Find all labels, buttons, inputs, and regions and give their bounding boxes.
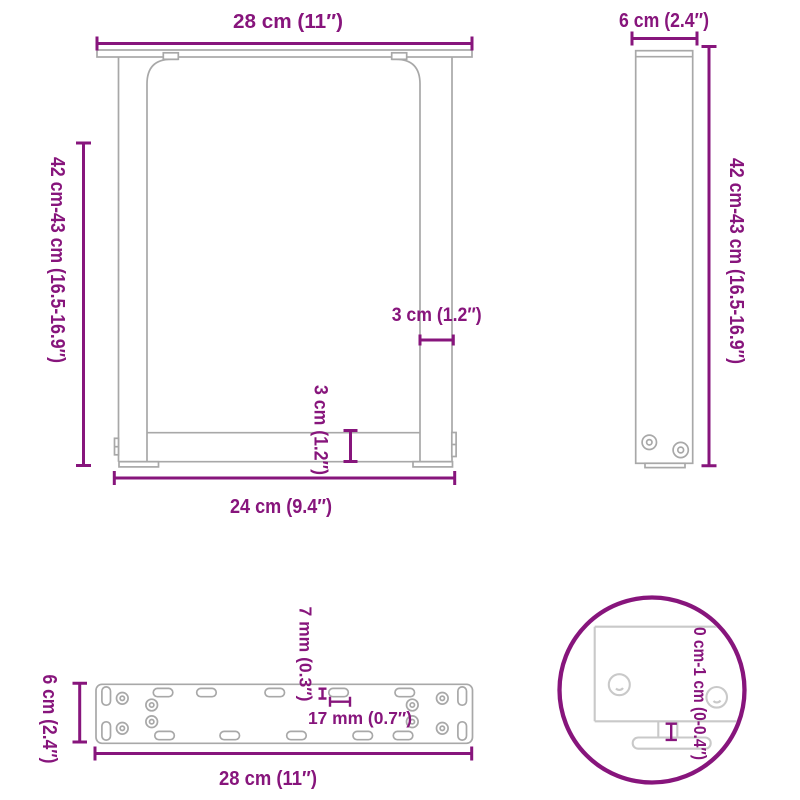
side-foot-plate: [645, 463, 685, 467]
plate-depth-dimension-line: [73, 683, 88, 742]
front-bottom-width-label: 24 cm (9.4″): [230, 495, 332, 518]
front-height-dimension-line: [76, 143, 91, 466]
side-view-outline: [636, 51, 693, 468]
leg-thickness-label: 3 cm (1.2″): [392, 305, 482, 326]
leg-thickness-dimension-line: [420, 335, 453, 346]
side-depth-dimension-line: [632, 32, 697, 46]
plate-length-dimension-line: [95, 747, 472, 761]
side-depth-label: 6 cm (2.4″): [619, 9, 709, 32]
front-view-outline: [97, 50, 472, 467]
right-leg-inner-edge: [392, 59, 420, 461]
front-bottom-width-dimension-line: [114, 471, 454, 485]
top-plate: [97, 50, 472, 57]
slot-width-label: 7 mm (0.3″): [296, 607, 316, 702]
side-leg-body: [636, 51, 693, 464]
front-top-width-label: 28 cm (11″): [233, 10, 343, 33]
left-mount-tab: [163, 53, 178, 60]
side-view: 6 cm (2.4″) 42 cm-43 cm (16.5-16.9″): [619, 9, 748, 468]
slot-length-label: 17 mm (0.7″): [308, 708, 412, 728]
crossbar-thickness-dimension-line: [344, 431, 358, 462]
front-top-width-dimension-line: [97, 37, 472, 51]
plate-outline: [96, 684, 473, 743]
front-height-label: 42 cm-43 cm (16.5-16.9″): [46, 157, 69, 363]
technical-diagram-svg: 28 cm (11″) 42 cm-43 cm (16.5-16.9″) 3 c…: [0, 0, 800, 800]
right-mount-tab: [392, 53, 407, 60]
diagram-canvas: 28 cm (11″) 42 cm-43 cm (16.5-16.9″) 3 c…: [0, 0, 800, 800]
plate-depth-label: 6 cm (2.4″): [38, 675, 61, 764]
detail-view: 0 cm-1 cm (0-0.4″): [560, 598, 749, 783]
right-foot-plate: [413, 462, 453, 467]
detail-circle: [560, 598, 745, 783]
side-height-label: 42 cm-43 cm (16.5-16.9″): [725, 158, 748, 364]
front-view: 28 cm (11″) 42 cm-43 cm (16.5-16.9″) 3 c…: [46, 10, 482, 518]
side-height-dimension-line: [702, 47, 717, 466]
crossbar-thickness-label: 3 cm (1.2″): [310, 385, 331, 475]
plate-length-label: 28 cm (11″): [219, 767, 317, 790]
adjustment-range-label: 0 cm-1 cm (0-0.4″): [690, 627, 710, 760]
plate-view: 7 mm (0.3″) 17 mm (0.7″) 6 cm (2.4″) 28 …: [38, 607, 473, 791]
left-foot-plate: [119, 462, 159, 467]
left-leg-inner-edge: [147, 59, 178, 461]
